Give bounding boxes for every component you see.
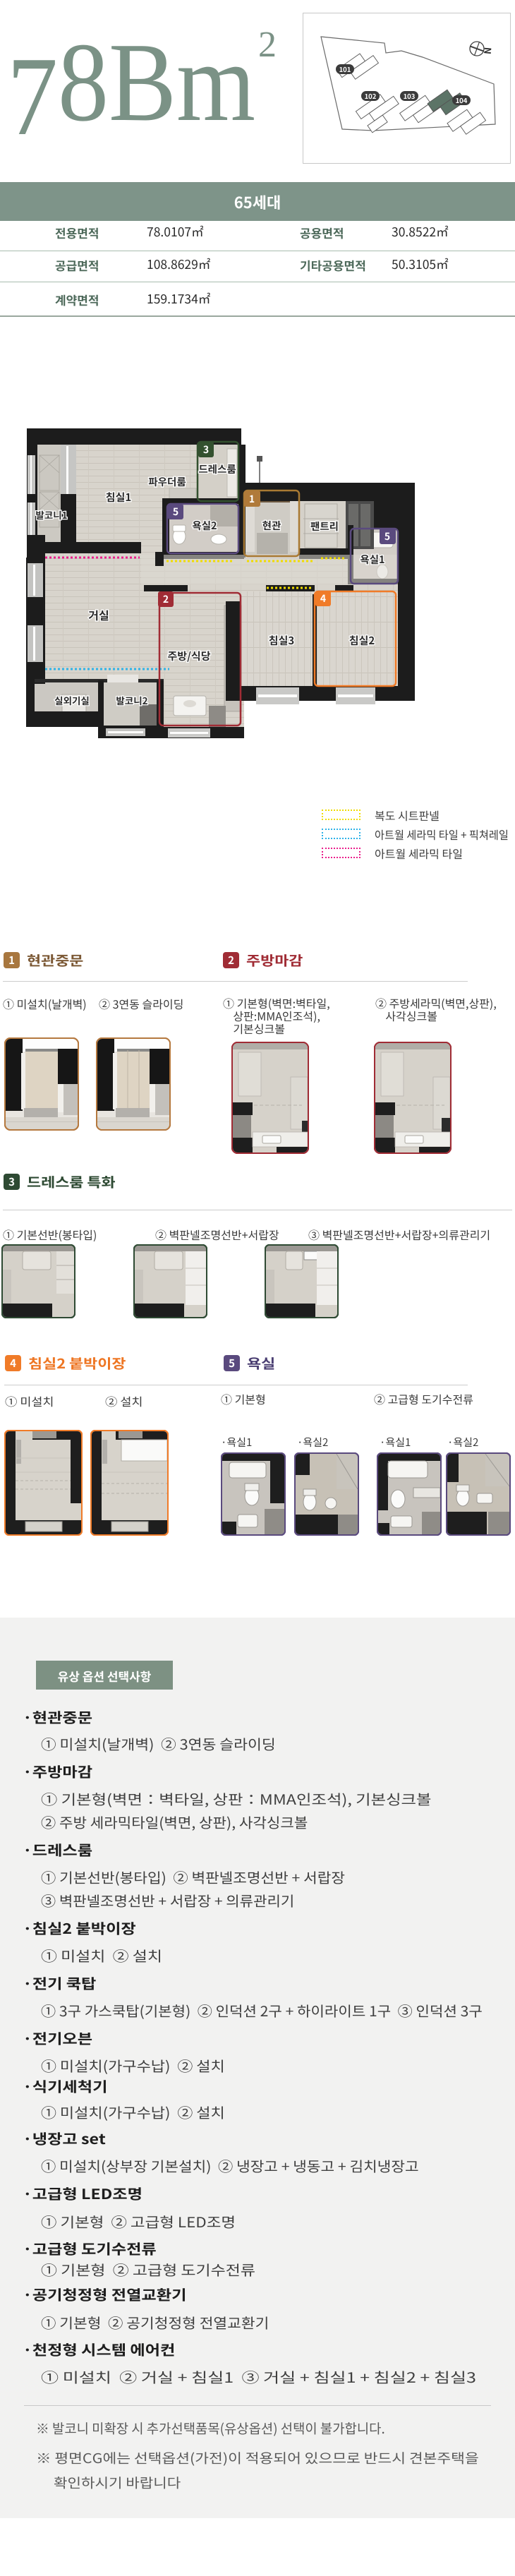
svg-text:침실2: 침실2	[349, 633, 375, 648]
svg-text:주방/식당: 주방/식당	[167, 649, 210, 663]
svg-text:실외기실: 실외기실	[54, 693, 90, 707]
svg-text:4: 4	[320, 591, 326, 606]
svg-text:N: N	[481, 47, 495, 54]
svg-text:욕실1: 욕실1	[360, 552, 384, 567]
svg-text:거실: 거실	[88, 606, 109, 623]
svg-text:101: 101	[339, 64, 351, 74]
svg-text:1: 1	[249, 492, 255, 506]
svg-text:2: 2	[163, 592, 169, 606]
svg-text:파우더룸: 파우더룸	[148, 474, 186, 489]
svg-text:104: 104	[456, 95, 468, 105]
svg-text:현관: 현관	[262, 518, 281, 533]
svg-text:102: 102	[365, 91, 377, 101]
svg-text:103: 103	[404, 91, 416, 101]
svg-text:팬트리: 팬트리	[310, 519, 339, 534]
svg-text:5: 5	[384, 529, 390, 543]
svg-text:5: 5	[173, 505, 178, 519]
svg-text:침실3: 침실3	[269, 633, 294, 648]
svg-text:3: 3	[203, 443, 209, 457]
svg-text:드레스룸: 드레스룸	[198, 462, 236, 476]
svg-text:발코니2: 발코니2	[116, 693, 147, 707]
svg-text:발코니1: 발코니1	[35, 507, 67, 522]
svg-text:침실1: 침실1	[106, 490, 131, 505]
svg-text:욕실2: 욕실2	[192, 518, 217, 533]
